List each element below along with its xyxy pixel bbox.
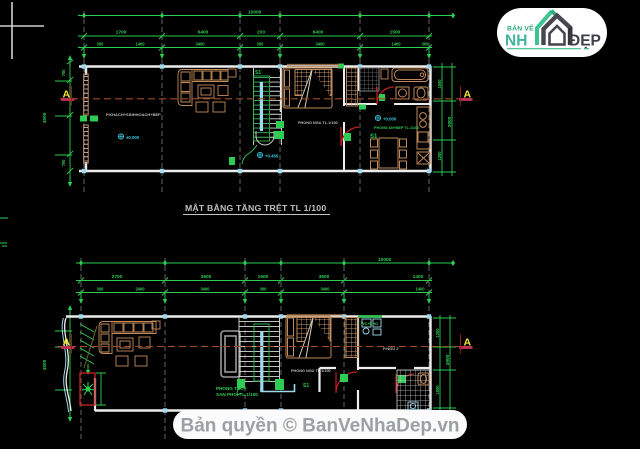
svg-text:1500: 1500	[258, 274, 269, 280]
svg-text:1500: 1500	[390, 30, 401, 36]
svg-text:PHONG NGU TL.1/100: PHONG NGU TL.1/100	[298, 121, 338, 125]
svg-text:10000: 10000	[378, 257, 392, 263]
svg-text:1200: 1200	[437, 151, 442, 161]
svg-text:3400: 3400	[200, 287, 210, 292]
svg-text:PHONG NGU TL.1/100: PHONG NGU TL.1/100	[291, 369, 331, 373]
svg-text:BẢN VẼ: BẢN VẼ	[507, 24, 534, 33]
svg-text:+0.000: +0.000	[383, 117, 397, 122]
svg-text:3400: 3400	[195, 42, 205, 47]
svg-text:700: 700	[61, 159, 66, 167]
svg-text:1400: 1400	[391, 42, 401, 47]
svg-text:3600: 3600	[319, 274, 330, 280]
svg-text:1200: 1200	[435, 328, 440, 338]
svg-text:300: 300	[97, 42, 105, 47]
svg-text:S1: S1	[303, 383, 309, 389]
svg-text:2700: 2700	[112, 274, 123, 280]
svg-text:3900: 3900	[445, 354, 451, 365]
svg-text:1500: 1500	[435, 385, 440, 395]
svg-text:1400: 1400	[413, 274, 424, 280]
svg-text:WC+KHO: WC+KHO	[361, 322, 378, 326]
svg-text:+0.450: +0.450	[265, 154, 279, 159]
svg-text:300: 300	[97, 287, 105, 292]
svg-text:300: 300	[260, 287, 268, 292]
svg-text:6400: 6400	[198, 30, 209, 36]
svg-text:700: 700	[61, 69, 66, 77]
svg-text:300: 300	[422, 42, 430, 47]
svg-text:S1: S1	[370, 134, 378, 140]
svg-text:300: 300	[257, 42, 265, 47]
svg-text:3900: 3900	[447, 116, 453, 127]
svg-text:3600: 3600	[201, 274, 212, 280]
svg-text:ĐẸP: ĐẸP	[569, 33, 601, 50]
svg-text:PHONG AN+BEP TL.1/100: PHONG AN+BEP TL.1/100	[374, 126, 419, 130]
svg-text:MẬT BẰNG TẦNG TRỆT TL 1/100: MẬT BẰNG TẦNG TRỆT TL 1/100	[185, 202, 326, 213]
svg-text:SAN PHOI TL.1/100: SAN PHOI TL.1/100	[216, 392, 258, 397]
svg-text:S1: S1	[255, 70, 261, 76]
svg-text:2400: 2400	[135, 287, 145, 292]
svg-text:3400: 3400	[320, 287, 330, 292]
svg-text:1500: 1500	[437, 79, 442, 89]
svg-text:PHONG THO+: PHONG THO+	[216, 386, 247, 391]
svg-text:1400: 1400	[415, 287, 425, 292]
svg-text:P.KHACH+SINHHOACH+BEP: P.KHACH+SINHHOACH+BEP	[106, 112, 161, 117]
svg-text:200: 200	[257, 30, 265, 36]
svg-text:1700: 1700	[116, 30, 127, 36]
svg-text:Bản quyền © BanVeNhaDep.vn: Bản quyền © BanVeNhaDep.vn	[180, 416, 459, 437]
svg-text:P.NGU 2: P.NGU 2	[383, 346, 399, 351]
svg-text:4500: 4500	[42, 112, 48, 123]
svg-text:3400: 3400	[315, 42, 325, 47]
svg-text:±0.000: ±0.000	[126, 135, 140, 140]
svg-text:10000: 10000	[248, 10, 262, 16]
svg-text:NH: NH	[505, 33, 527, 50]
svg-text:6400: 6400	[313, 30, 324, 36]
svg-text:1400: 1400	[135, 42, 145, 47]
svg-text:4500: 4500	[42, 359, 48, 370]
